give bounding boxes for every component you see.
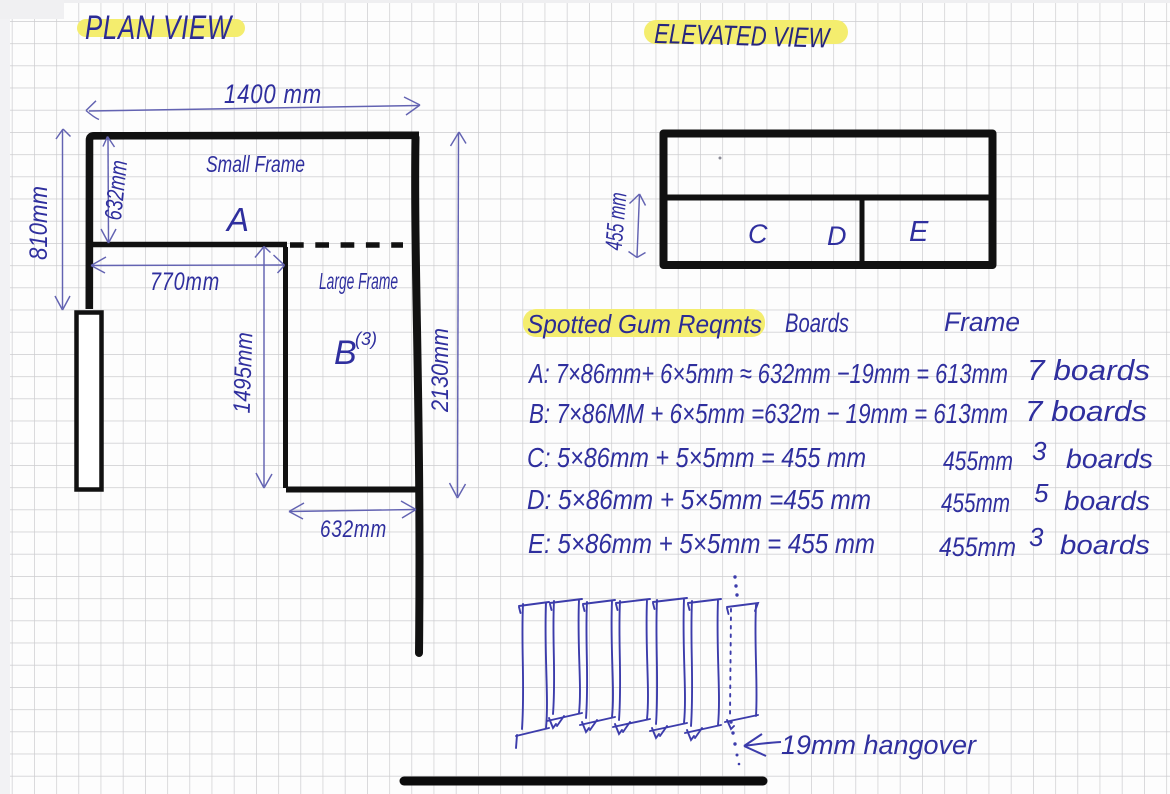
- svg-text:E: E: [909, 216, 929, 248]
- svg-text:D: 5×86mm + 5×5mm =455 mm: D: 5×86mm + 5×5mm =455 mm: [527, 484, 871, 515]
- svg-text:Spotted Gum Reqmts: Spotted Gum Reqmts: [527, 309, 762, 339]
- svg-text:5: 5: [1034, 478, 1049, 508]
- svg-text:2130mm: 2130mm: [427, 328, 454, 413]
- svg-text:1495mm: 1495mm: [229, 332, 259, 414]
- svg-text:Large Frame: Large Frame: [319, 268, 398, 294]
- svg-text:boards: boards: [1066, 444, 1153, 474]
- svg-text:19mm hangover: 19mm hangover: [781, 730, 977, 760]
- svg-text:455 mm: 455 mm: [601, 191, 633, 251]
- svg-text:3: 3: [1029, 522, 1044, 552]
- svg-text:B: B: [334, 334, 357, 372]
- svg-text:A: A: [225, 201, 249, 238]
- svg-text:455mm: 455mm: [943, 446, 1013, 476]
- svg-text:455mm: 455mm: [941, 488, 1010, 518]
- svg-text:770mm: 770mm: [150, 268, 220, 296]
- svg-text:810mm: 810mm: [25, 186, 53, 260]
- svg-text:7 boards: 7 boards: [1025, 396, 1147, 428]
- svg-text:A: 7×86mm+ 6×5mm ≈ 632mm −19mm: A: 7×86mm+ 6×5mm ≈ 632mm −19mm = 613mm: [527, 358, 1008, 389]
- svg-text:boards: boards: [1060, 530, 1150, 560]
- svg-text:1400 mm: 1400 mm: [224, 79, 322, 109]
- svg-text:PLAN VIEW: PLAN VIEW: [85, 9, 233, 47]
- svg-text:7 boards: 7 boards: [1027, 355, 1150, 387]
- svg-text:455mm: 455mm: [939, 532, 1016, 562]
- svg-text:632mm: 632mm: [320, 516, 387, 543]
- svg-text:Frame: Frame: [944, 307, 1020, 337]
- svg-text:ELEVATED VIEW: ELEVATED VIEW: [654, 18, 832, 54]
- svg-text:B: 7×86MM + 6×5mm =632m − 19mm: B: 7×86MM + 6×5mm =632m − 19mm = 613mm: [529, 398, 1008, 429]
- svg-text:C: 5×86mm + 5×5mm = 455 mm: C: 5×86mm + 5×5mm = 455 mm: [527, 442, 866, 473]
- svg-text:C: C: [748, 219, 768, 249]
- svg-text:E: 5×86mm + 5×5mm = 455 mm: E: 5×86mm + 5×5mm = 455 mm: [528, 528, 875, 559]
- svg-text:Boards: Boards: [785, 308, 849, 338]
- svg-text:(3): (3): [355, 329, 377, 349]
- svg-text:Small Frame: Small Frame: [206, 151, 305, 177]
- svg-text:boards: boards: [1064, 486, 1150, 516]
- svg-text:3: 3: [1032, 436, 1047, 466]
- svg-text:D: D: [827, 221, 847, 251]
